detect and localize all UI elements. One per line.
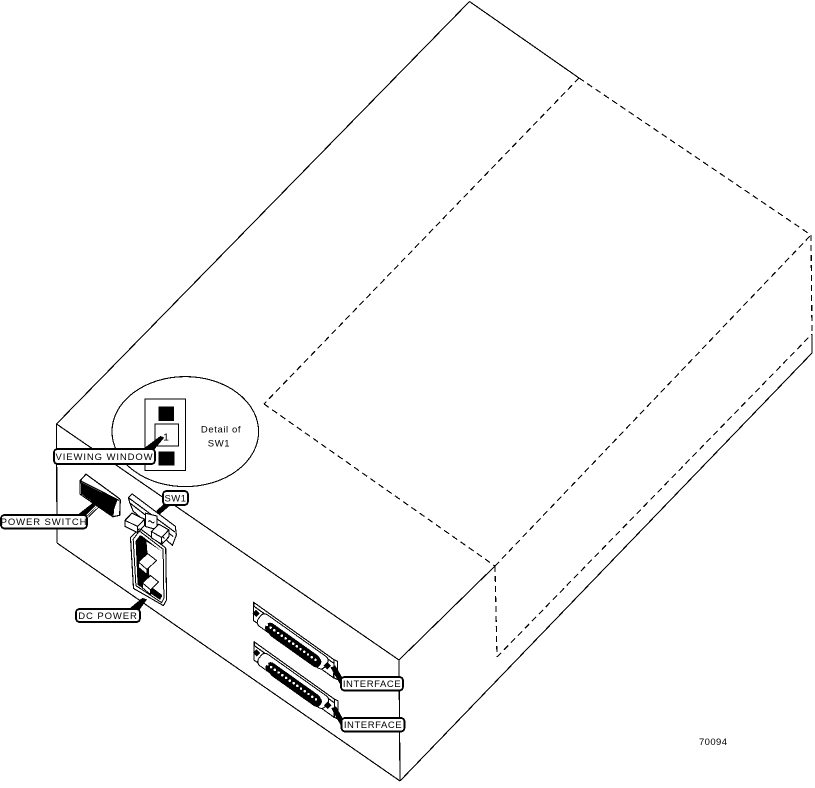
svg-text:DC POWER: DC POWER bbox=[78, 611, 137, 622]
svg-text:70094: 70094 bbox=[699, 737, 727, 748]
svg-text:VIEWING WINDOW: VIEWING WINDOW bbox=[55, 452, 153, 463]
svg-text:SW1: SW1 bbox=[164, 493, 186, 504]
svg-text:INTERFACE: INTERFACE bbox=[343, 679, 401, 690]
svg-text:POWER SWITCH: POWER SWITCH bbox=[1, 517, 88, 528]
svg-text:Detail of: Detail of bbox=[201, 425, 241, 436]
svg-text:INTERFACE: INTERFACE bbox=[344, 720, 402, 731]
svg-text:SW1: SW1 bbox=[208, 439, 230, 450]
